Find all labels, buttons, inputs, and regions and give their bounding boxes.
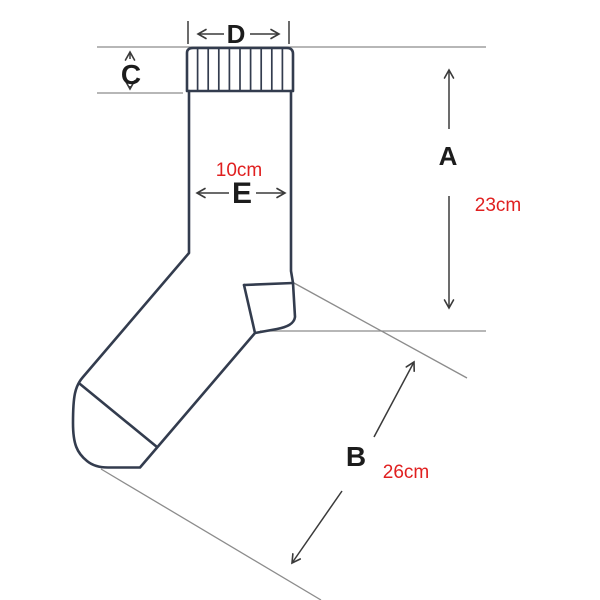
heel-seam-side — [244, 285, 255, 333]
sock-measurement-diagram: D C A 23cm E 10cm B 26cm — [0, 0, 600, 600]
dimension-b: B 26cm — [292, 362, 429, 563]
dim-b-label: B — [346, 441, 366, 472]
dim-a-value: 23cm — [475, 195, 521, 216]
sock-drawing — [73, 48, 295, 468]
dim-b-down-arrow — [292, 491, 342, 563]
dimension-d: D — [188, 19, 289, 49]
dim-d-label: D — [227, 19, 246, 49]
toe-extension-line — [101, 469, 321, 600]
toe-seam — [80, 384, 157, 447]
dim-b-value: 26cm — [383, 462, 429, 483]
sock-body-outline — [73, 91, 295, 468]
dim-b-up-arrow — [374, 362, 414, 437]
dimension-e: E 10cm — [197, 160, 285, 210]
heel-seam-top — [244, 283, 293, 285]
dim-c-label: C — [121, 59, 141, 90]
dimension-c: C — [121, 52, 141, 90]
dim-e-label: E — [232, 177, 252, 210]
diagram-canvas: D C A 23cm E 10cm B 26cm — [0, 0, 600, 600]
dimension-a: A 23cm — [439, 70, 522, 308]
dim-e-value: 10cm — [216, 160, 262, 181]
dim-a-label: A — [439, 141, 458, 171]
cuff-rib-lines — [198, 49, 283, 91]
